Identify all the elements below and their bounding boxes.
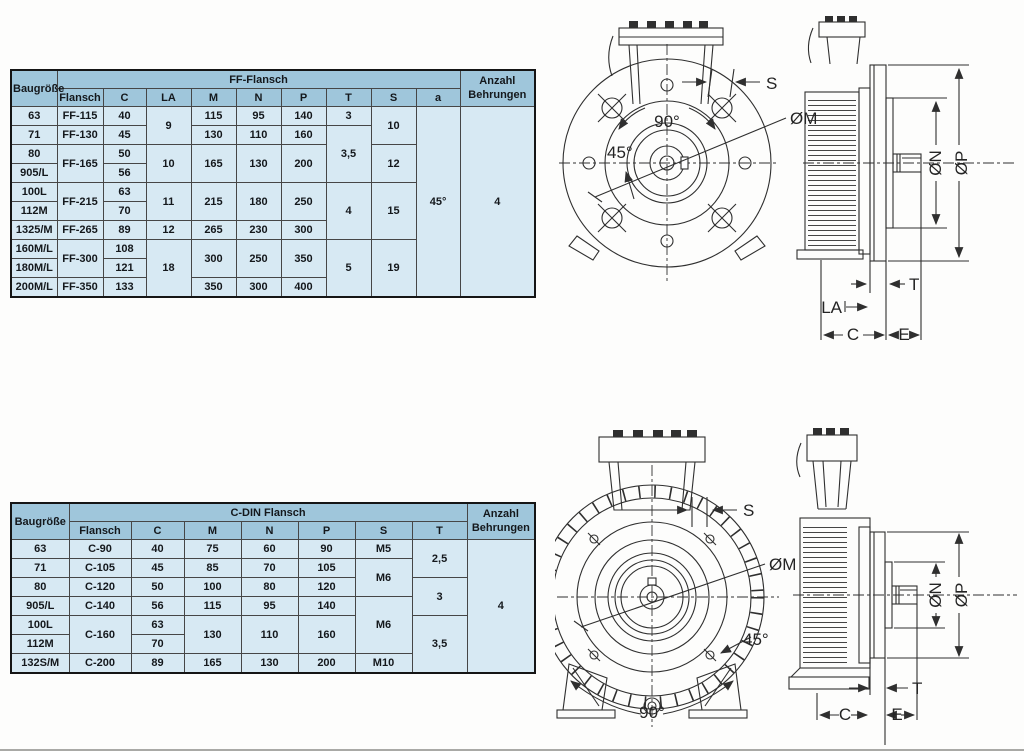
ff-side-view [797,16,1017,340]
cell-flansch: FF-350 [57,278,103,298]
cell-m: 350 [191,278,236,298]
cell-s: M10 [355,654,412,674]
col-header-m: M [191,89,236,107]
cell-n: 110 [241,616,298,654]
cell-m: 130 [184,616,241,654]
cell-c: 70 [103,202,146,221]
cell-c: 56 [103,164,146,183]
col-header-baugroesse: Baugröße [11,70,57,107]
cell-m: 130 [191,126,236,145]
cell-flansch: FF-265 [57,221,103,240]
cell-n: 95 [236,107,281,126]
cdin-flansch-table: Baugröße C-DIN Flansch Anzahl Behrungen … [10,502,536,674]
cell-baugroesse: 1325/M [11,221,57,240]
dim-label-e: E [891,705,902,724]
cell-s: 12 [371,145,416,183]
cell-t: 4 [326,183,371,240]
dim-label-m: ØM [769,555,796,574]
cdin-front-view [555,430,779,727]
group-header-cdin-flansch: C-DIN Flansch [69,503,467,522]
cell-c: 40 [131,540,184,559]
cell-la: 11 [146,183,191,221]
cell-n: 95 [241,597,298,616]
cell-n: 130 [241,654,298,674]
anzahl-line1: Anzahl [469,508,534,521]
cell-s: 19 [371,240,416,298]
cell-m: 115 [184,597,241,616]
ff-flansch-drawing: S ØM 90° 45° ØN ØP T LA C E [555,8,1021,344]
cell-t: 2,5 [412,540,467,578]
cell-c: 63 [103,183,146,202]
cell-la: 10 [146,145,191,183]
cell-baugroesse: 905/L [11,597,69,616]
anzahl-line2: Behrungen [469,522,534,535]
cell-la: 12 [146,221,191,240]
cell-s: 10 [371,107,416,145]
col-header-t: T [326,89,371,107]
catalog-page: Baugröße FF-Flansch Anzahl Behrungen Fla… [0,0,1024,751]
cell-c: 50 [131,578,184,597]
cell-p: 250 [281,183,326,221]
cell-n: 300 [236,278,281,298]
cell-s: M6 [355,597,412,654]
cell-c: 45 [103,126,146,145]
cell-baugroesse: 180M/L [11,259,57,278]
dim-label-45: 45° [743,630,769,649]
dim-label-m: ØM [790,109,817,128]
cell-t: 3 [326,107,371,126]
col-header-s: S [355,522,412,540]
group-header-ff-flansch: FF-Flansch [57,70,460,89]
cell-m: 165 [184,654,241,674]
cell-baugroesse: 905/L [11,164,57,183]
dim-label-c: C [839,705,851,724]
cell-p: 90 [298,540,355,559]
cell-n: 230 [236,221,281,240]
cell-baugroesse: 200M/L [11,278,57,298]
cell-p: 120 [298,578,355,597]
col-header-a: a [416,89,460,107]
cell-n: 80 [241,578,298,597]
cell-t: 3 [412,578,467,616]
cell-s: M5 [355,540,412,559]
cell-p: 200 [298,654,355,674]
dim-label-n: ØN [926,582,945,608]
col-header-t: T [412,522,467,540]
cell-flansch: C-160 [69,616,131,654]
cell-t: 3,5 [326,126,371,183]
cell-a: 45° [416,107,460,298]
cell-flansch: FF-300 [57,240,103,278]
cell-m: 75 [184,540,241,559]
cell-flansch: C-200 [69,654,131,674]
col-header-c: C [103,89,146,107]
cell-s: M6 [355,559,412,597]
cell-anzahl: 4 [460,107,535,298]
cell-p: 400 [281,278,326,298]
cell-m: 300 [191,240,236,278]
cell-m: 265 [191,221,236,240]
cell-flansch: C-140 [69,597,131,616]
cell-la: 18 [146,240,191,298]
cell-p: 200 [281,145,326,183]
cell-baugroesse: 100L [11,183,57,202]
cell-n: 250 [236,240,281,278]
dim-label-la: LA [821,298,842,317]
cell-flansch: FF-215 [57,183,103,221]
cell-t: 5 [326,240,371,298]
cell-m: 215 [191,183,236,221]
cdin-flansch-drawing: S ØM 45° 90° ØN ØP T C E [555,415,1021,751]
cell-p: 140 [281,107,326,126]
cell-c: 121 [103,259,146,278]
cell-n: 180 [236,183,281,221]
cell-c: 89 [131,654,184,674]
dim-label-45: 45° [607,143,633,162]
table-row: 63 FF-115 40 9 115 95 140 3 10 45° 4 [11,107,535,126]
cell-c: 108 [103,240,146,259]
cell-p: 160 [281,126,326,145]
cell-baugroesse: 63 [11,107,57,126]
table-row: 63 C-90 40 75 60 90 M5 2,5 4 [11,540,535,559]
cell-p: 105 [298,559,355,578]
header-row: Baugröße C-DIN Flansch Anzahl Behrungen [11,503,535,522]
cell-m: 100 [184,578,241,597]
cell-flansch: FF-165 [57,145,103,183]
cell-flansch: C-105 [69,559,131,578]
col-header-c: C [131,522,184,540]
cell-c: 50 [103,145,146,164]
cell-n: 70 [241,559,298,578]
col-header-m: M [184,522,241,540]
dim-label-s: S [743,501,754,520]
header-row: Baugröße FF-Flansch Anzahl Behrungen [11,70,535,89]
subheader-row: Flansch C LA M N P T S a [11,89,535,107]
cell-p: 140 [298,597,355,616]
dim-label-t: T [909,275,919,294]
cell-flansch: FF-115 [57,107,103,126]
cell-p: 350 [281,240,326,278]
col-header-n: N [241,522,298,540]
col-header-p: P [281,89,326,107]
cell-n: 60 [241,540,298,559]
cell-n: 130 [236,145,281,183]
cell-c: 89 [103,221,146,240]
subheader-row: Flansch C M N P S T [11,522,535,540]
cell-flansch: FF-130 [57,126,103,145]
cdin-side-view [789,428,1017,745]
cell-baugroesse: 80 [11,578,69,597]
cell-m: 115 [191,107,236,126]
col-header-n: N [236,89,281,107]
table-row: 100L C-160 63 130 110 160 3,5 [11,616,535,635]
col-header-s: S [371,89,416,107]
cell-m: 85 [184,559,241,578]
cell-baugroesse: 100L [11,616,69,635]
dim-label-n: ØN [926,150,945,176]
cell-anzahl: 4 [467,540,535,674]
cell-flansch: C-90 [69,540,131,559]
cell-t: 3,5 [412,616,467,674]
col-header-flansch: Flansch [69,522,131,540]
col-header-anzahl: Anzahl Behrungen [467,503,535,540]
cell-c: 70 [131,635,184,654]
table-row: 80 C-120 50 100 80 120 3 [11,578,535,597]
dim-label-90: 90° [639,703,665,722]
cell-baugroesse: 71 [11,559,69,578]
cell-baugroesse: 71 [11,126,57,145]
col-header-baugroesse: Baugröße [11,503,69,540]
cell-baugroesse: 112M [11,635,69,654]
dim-label-p: ØP [952,151,971,176]
dim-label-p: ØP [952,583,971,608]
dim-label-t: T [912,679,922,698]
cell-baugroesse: 80 [11,145,57,164]
cell-m: 165 [191,145,236,183]
col-header-la: LA [146,89,191,107]
ff-front-view [559,21,786,282]
cell-baugroesse: 132S/M [11,654,69,674]
col-header-p: P [298,522,355,540]
cell-la: 9 [146,107,191,145]
anzahl-line1: Anzahl [462,75,534,88]
cell-flansch: C-120 [69,578,131,597]
cell-p: 160 [298,616,355,654]
dim-label-e: E [898,325,909,344]
cell-p: 300 [281,221,326,240]
cell-baugroesse: 160M/L [11,240,57,259]
cell-c: 133 [103,278,146,298]
cell-baugroesse: 63 [11,540,69,559]
ff-flansch-table: Baugröße FF-Flansch Anzahl Behrungen Fla… [10,69,536,298]
cell-c: 40 [103,107,146,126]
cell-c: 63 [131,616,184,635]
ff-dimension-labels: S ØM 90° 45° ØN ØP T LA C E [607,74,971,344]
cell-c: 56 [131,597,184,616]
cell-c: 45 [131,559,184,578]
cell-baugroesse: 112M [11,202,57,221]
cell-s: 15 [371,183,416,240]
col-header-flansch: Flansch [57,89,103,107]
dim-label-90: 90° [654,112,680,131]
col-header-anzahl: Anzahl Behrungen [460,70,535,107]
anzahl-line2: Behrungen [462,89,534,102]
dim-label-c: C [847,325,859,344]
dim-label-s: S [766,74,777,93]
cell-n: 110 [236,126,281,145]
